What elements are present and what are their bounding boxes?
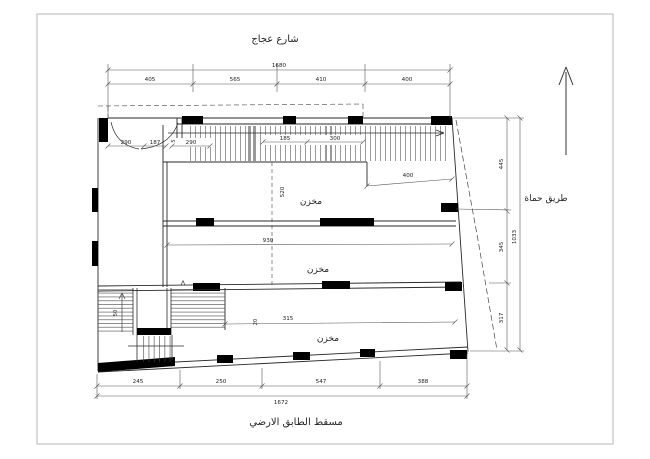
dim-offset-400: 400 (403, 173, 414, 179)
dim-ramp: 290 (186, 140, 197, 146)
dim-room1-width: 930 (263, 238, 274, 244)
dim-top-seg4: 400 (402, 77, 413, 83)
dim-top-seg1: 405 (145, 77, 156, 83)
dim-right-seg3: 317 (499, 312, 505, 323)
setback-dashed-line (98, 104, 363, 118)
floor-plan-drawing: شارع عجاج طريق حماة مسقط الطابق الارضي م… (0, 0, 650, 459)
road-dashed-line (456, 120, 497, 350)
dim-bottom-seg1: 245 (133, 379, 144, 385)
dim-right-seg1: 445 (499, 158, 505, 169)
north-arrow-icon (559, 67, 573, 155)
dim-room3-width: 315 (283, 316, 294, 322)
dim-door-seg2: 187 (150, 140, 161, 146)
room-label-storage-1: مخزن (300, 197, 322, 207)
street-name-title: شارع عجاج (251, 34, 298, 45)
triangle-marker: Λ (181, 279, 186, 287)
dim-top-seg2: 565 (230, 77, 241, 83)
floor-plan-page: شارع عجاج طريق حماة مسقط الطابق الارضي م… (0, 0, 650, 459)
dim-top-seg3: 410 (316, 77, 327, 83)
road-name-label: طريق حماة (524, 194, 567, 204)
plan-caption: مسقط الطابق الارضي (249, 417, 343, 428)
dim-bottom-seg2: 250 (216, 379, 227, 385)
room-label-storage-2: مخزن (307, 265, 329, 275)
dim-bottom-seg4: 388 (418, 379, 429, 385)
dim-door-seg1: 290 (121, 140, 132, 146)
dim-right-total: 1033 (512, 229, 518, 244)
dim-right-seg2: 345 (499, 241, 505, 252)
dim-bottom-total: 1672 (274, 400, 288, 406)
room-label-storage-3: مخزن (317, 334, 339, 344)
dim-ramp-seg1: 185 (280, 136, 291, 142)
dim-room3-note: 20 (253, 319, 259, 325)
interior-dimension-lines (106, 135, 458, 327)
dim-ramp-note: 5 (171, 139, 177, 142)
dim-top-total: 1680 (272, 63, 287, 69)
top-dimension-lines (106, 64, 453, 118)
dim-room1-depth: 520 (280, 186, 286, 197)
dim-stair-width: 50 (113, 310, 119, 316)
stairs (98, 288, 225, 362)
dim-ramp-seg2: 300 (330, 136, 341, 142)
dim-bottom-seg3: 547 (316, 379, 327, 385)
